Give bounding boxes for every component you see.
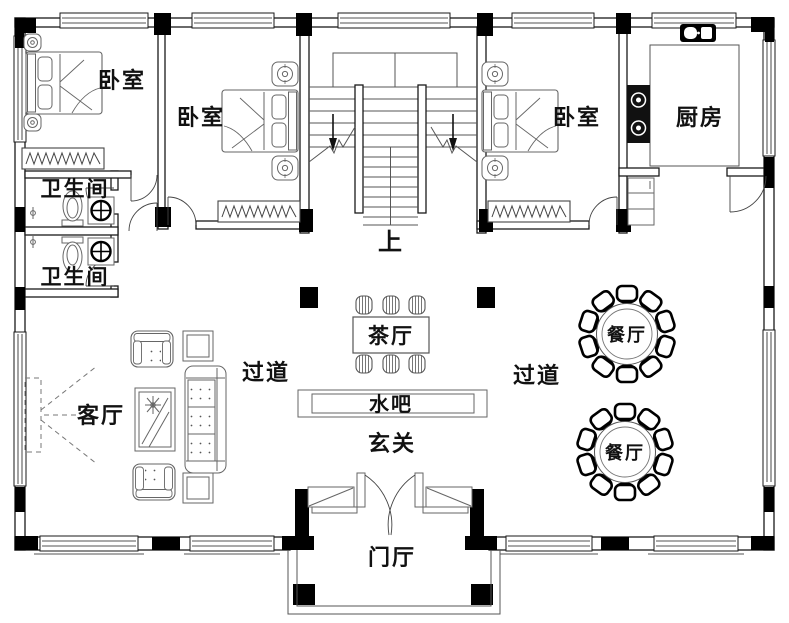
entry-double-door	[357, 473, 423, 535]
label-bathroom-lower: 卫生间	[41, 265, 110, 289]
fridge-icon	[628, 178, 654, 225]
window-bottom-3	[500, 536, 598, 554]
label-kitchen: 厨房	[676, 105, 724, 130]
window-bottom-4	[648, 536, 744, 554]
bed-icon	[482, 90, 558, 152]
label-living-room: 客厅	[77, 403, 125, 428]
washbasin-icon	[88, 197, 114, 224]
window-top-3	[338, 13, 450, 28]
wardrobe-icon	[22, 148, 104, 169]
window-right-1	[763, 40, 775, 156]
bedroom2-door	[168, 197, 196, 225]
armchair-icon	[133, 464, 175, 500]
window-bottom-2	[184, 536, 280, 554]
washbasin-icon	[88, 238, 114, 265]
label-stairs-up: 上	[378, 229, 404, 256]
shoe-cabinet-icon	[308, 487, 357, 513]
coffee-table-icon	[135, 388, 175, 451]
window-top-1	[60, 13, 148, 28]
bedroom3-door	[589, 197, 617, 225]
label-corridor-left: 过道	[242, 360, 290, 385]
plant-icon	[145, 396, 161, 414]
side-table-icon	[183, 331, 213, 361]
wardrobe-icon	[218, 201, 300, 222]
label-water-bar: 水吧	[369, 393, 413, 416]
window-bottom-1	[34, 536, 144, 554]
bedroom1-door	[131, 175, 157, 201]
armchair-icon	[131, 331, 173, 367]
living-room-area	[25, 331, 226, 503]
bed-icon	[222, 90, 298, 152]
window-top-4	[512, 13, 594, 28]
kitchen-sink-icon	[680, 24, 716, 42]
floor-plan: 卧室 卧室 卧室 厨房 卫生间 卫生间 上 茶厅 过道 过道 水吧 玄关 客厅 …	[0, 0, 789, 623]
label-dining-bottom: 餐厅	[604, 442, 645, 463]
label-bathroom-upper: 卫生间	[41, 177, 110, 201]
label-bedroom-mid-right: 卧室	[553, 105, 601, 130]
label-corridor-right: 过道	[513, 363, 561, 388]
staircase	[309, 53, 477, 225]
label-entry: 玄关	[368, 431, 416, 456]
stove-icon	[627, 85, 650, 143]
label-bedroom-top-left: 卧室	[98, 68, 146, 93]
side-table-icon	[183, 473, 213, 503]
corridor-door	[129, 203, 157, 231]
window-right-2	[763, 330, 775, 486]
sofa-icon	[185, 366, 226, 473]
bed-icon	[26, 52, 102, 114]
wardrobe-icon	[488, 201, 570, 222]
label-dining-top: 餐厅	[606, 324, 647, 345]
kitchen-door	[730, 176, 766, 212]
window-top-2	[192, 13, 274, 28]
window-left-2	[14, 332, 26, 486]
shoe-cabinet-icon	[423, 487, 472, 513]
label-bedroom-mid-left: 卧室	[177, 105, 225, 130]
label-foyer: 门厅	[368, 545, 416, 570]
label-tea-hall: 茶厅	[368, 324, 414, 348]
